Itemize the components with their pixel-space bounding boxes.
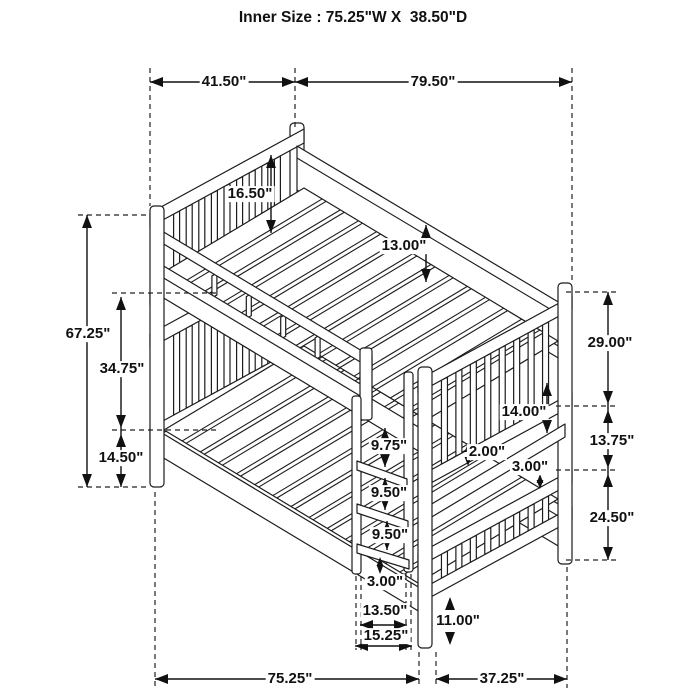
- front-left-post: [150, 206, 164, 487]
- dim-label-2: 67.25": [64, 326, 113, 342]
- dim-label-17: 13.50": [361, 603, 410, 619]
- dim-label-4: 14.50": [97, 450, 146, 466]
- dim-label-10: 14.00": [500, 404, 549, 420]
- dim-label-13: 9.75": [369, 438, 409, 454]
- dim-label-19: 11.00": [434, 613, 482, 629]
- dim-label-20: 75.25": [266, 671, 315, 687]
- dim-label-9: 24.50": [588, 510, 637, 526]
- dim-label-0: 41.50": [200, 74, 249, 90]
- dim-label-1: 79.50": [409, 74, 458, 90]
- dimension-diagram: 41.50"79.50"67.25"34.75"14.50"16.50"13.0…: [0, 0, 700, 700]
- dim-label-6: 13.00": [380, 238, 429, 254]
- dim-label-21: 37.25": [478, 671, 527, 687]
- dim-label-12: 3.00": [510, 459, 550, 475]
- dim-label-11: 2.00": [467, 444, 507, 460]
- dim-label-16: 3.00": [365, 574, 405, 590]
- dim-label-18: 15.25": [362, 628, 411, 644]
- front-right-post: [418, 367, 432, 648]
- dim-label-14: 9.50": [369, 485, 409, 501]
- diagram-title: Inner Size : 75.25"W X 38.50"D: [239, 9, 467, 27]
- dim-label-15: 9.50": [370, 527, 410, 543]
- dim-label-8: 13.75": [588, 433, 637, 449]
- dim-label-7: 29.00": [586, 335, 635, 351]
- dim-label-5: 16.50": [226, 186, 275, 202]
- dim-label-3: 34.75": [98, 361, 147, 377]
